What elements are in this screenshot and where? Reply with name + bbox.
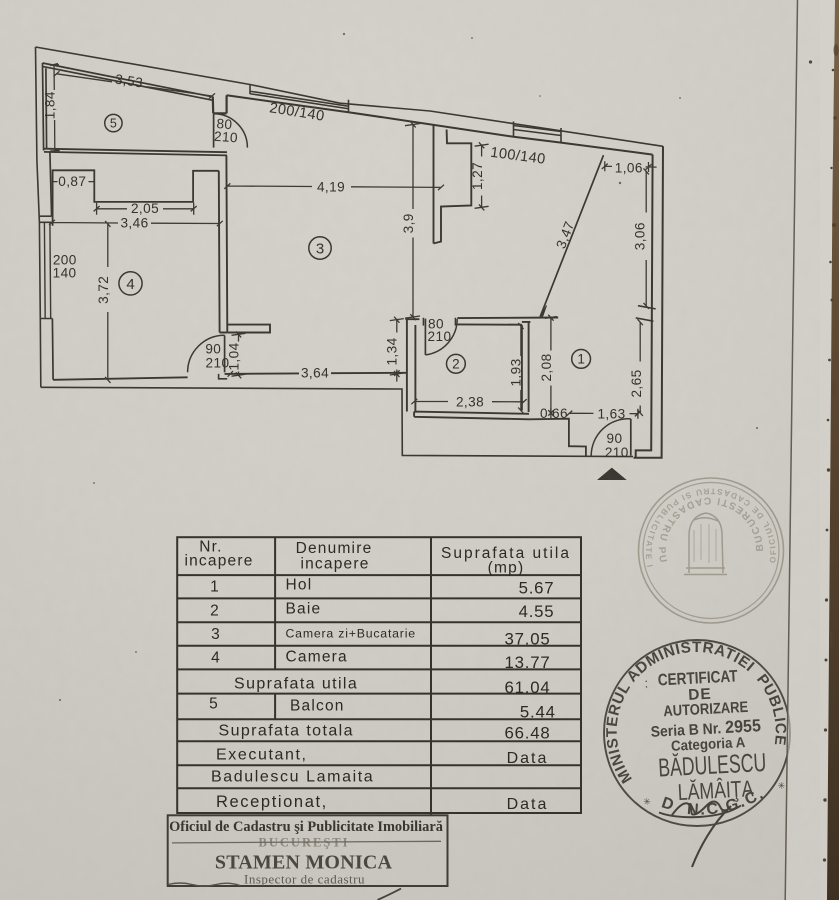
svg-text:66: 66 (552, 406, 568, 421)
svg-text:1,63: 1,63 (597, 406, 625, 421)
svg-text:37.05: 37.05 (505, 630, 551, 649)
svg-text:incapere: incapere (300, 556, 369, 573)
svg-text:Camera: Camera (286, 649, 348, 666)
svg-text:0,87: 0,87 (58, 174, 86, 189)
svg-text:5.67: 5.67 (519, 579, 555, 598)
svg-text:210: 210 (605, 445, 629, 460)
svg-text:1,04: 1,04 (227, 342, 242, 370)
svg-text:2,38: 2,38 (456, 394, 484, 409)
svg-text:13.77: 13.77 (505, 653, 551, 672)
svg-text:3: 3 (316, 240, 324, 257)
svg-text:Denumire: Denumire (296, 540, 373, 557)
svg-text:1,93: 1,93 (508, 358, 523, 386)
svg-text:Baie: Baie (286, 601, 322, 618)
svg-text:2: 2 (210, 603, 220, 620)
svg-text:90: 90 (205, 342, 221, 357)
svg-text:3,64: 3,64 (301, 366, 329, 381)
svg-text:2,65: 2,65 (629, 369, 644, 397)
svg-text:STAMEN MONICA: STAMEN MONICA (215, 852, 393, 874)
svg-text:Balcon: Balcon (290, 698, 345, 715)
svg-text:incapere: incapere (184, 553, 253, 570)
svg-text:(mp): (mp) (488, 560, 525, 577)
svg-text:5: 5 (209, 696, 219, 713)
svg-text:1,27: 1,27 (470, 162, 485, 190)
svg-text:Executant,: Executant, (216, 747, 308, 764)
svg-text:5: 5 (110, 117, 117, 131)
svg-text:2: 2 (452, 357, 460, 372)
svg-text:1,84: 1,84 (43, 91, 58, 119)
svg-text:61.04: 61.04 (505, 678, 551, 697)
svg-text:Receptionat,: Receptionat, (216, 793, 328, 811)
svg-text:3,06: 3,06 (633, 222, 648, 250)
svg-text:1,06: 1,06 (615, 160, 643, 175)
svg-text:Suprafata utila: Suprafata utila (234, 676, 358, 693)
svg-text:3,9: 3,9 (401, 213, 416, 233)
svg-text:3,72: 3,72 (96, 276, 111, 304)
svg-text:4: 4 (126, 276, 134, 293)
svg-text:Suprafata totala: Suprafata totala (219, 723, 354, 740)
svg-text:210: 210 (428, 329, 452, 344)
svg-text:4,19: 4,19 (317, 180, 345, 195)
svg-text:4: 4 (211, 650, 221, 667)
svg-text:Camera zi+Bucatarie: Camera zi+Bucatarie (286, 627, 416, 641)
svg-text:Oficiul de Cadastru şi Publici: Oficiul de Cadastru şi Publicitate Imobi… (169, 819, 443, 835)
svg-text:1,34: 1,34 (385, 337, 400, 365)
svg-text:3: 3 (211, 626, 221, 643)
svg-text:Hol: Hol (286, 577, 313, 594)
svg-text:66.48: 66.48 (505, 724, 551, 743)
svg-text:140: 140 (53, 266, 77, 281)
svg-text:Badulescu Lamaita: Badulescu Lamaita (211, 769, 374, 786)
svg-text:2,08: 2,08 (539, 353, 554, 381)
svg-text:Inspector de cadastru: Inspector de cadastru (244, 872, 365, 887)
svg-text:✳: ✳ (643, 796, 652, 806)
svg-text:5.44: 5.44 (520, 703, 556, 722)
svg-text:✳: ✳ (777, 780, 786, 790)
svg-text:4.55: 4.55 (519, 602, 555, 621)
svg-text:Data: Data (507, 796, 549, 813)
svg-text:1: 1 (210, 579, 220, 596)
svg-text:90: 90 (607, 431, 623, 446)
svg-text:1: 1 (577, 352, 585, 367)
svg-text:Data: Data (507, 750, 549, 767)
svg-text:3,46: 3,46 (120, 215, 148, 230)
svg-text:0: 0 (540, 406, 548, 421)
svg-text:2,05: 2,05 (131, 201, 159, 216)
svg-text:210: 210 (214, 129, 239, 146)
